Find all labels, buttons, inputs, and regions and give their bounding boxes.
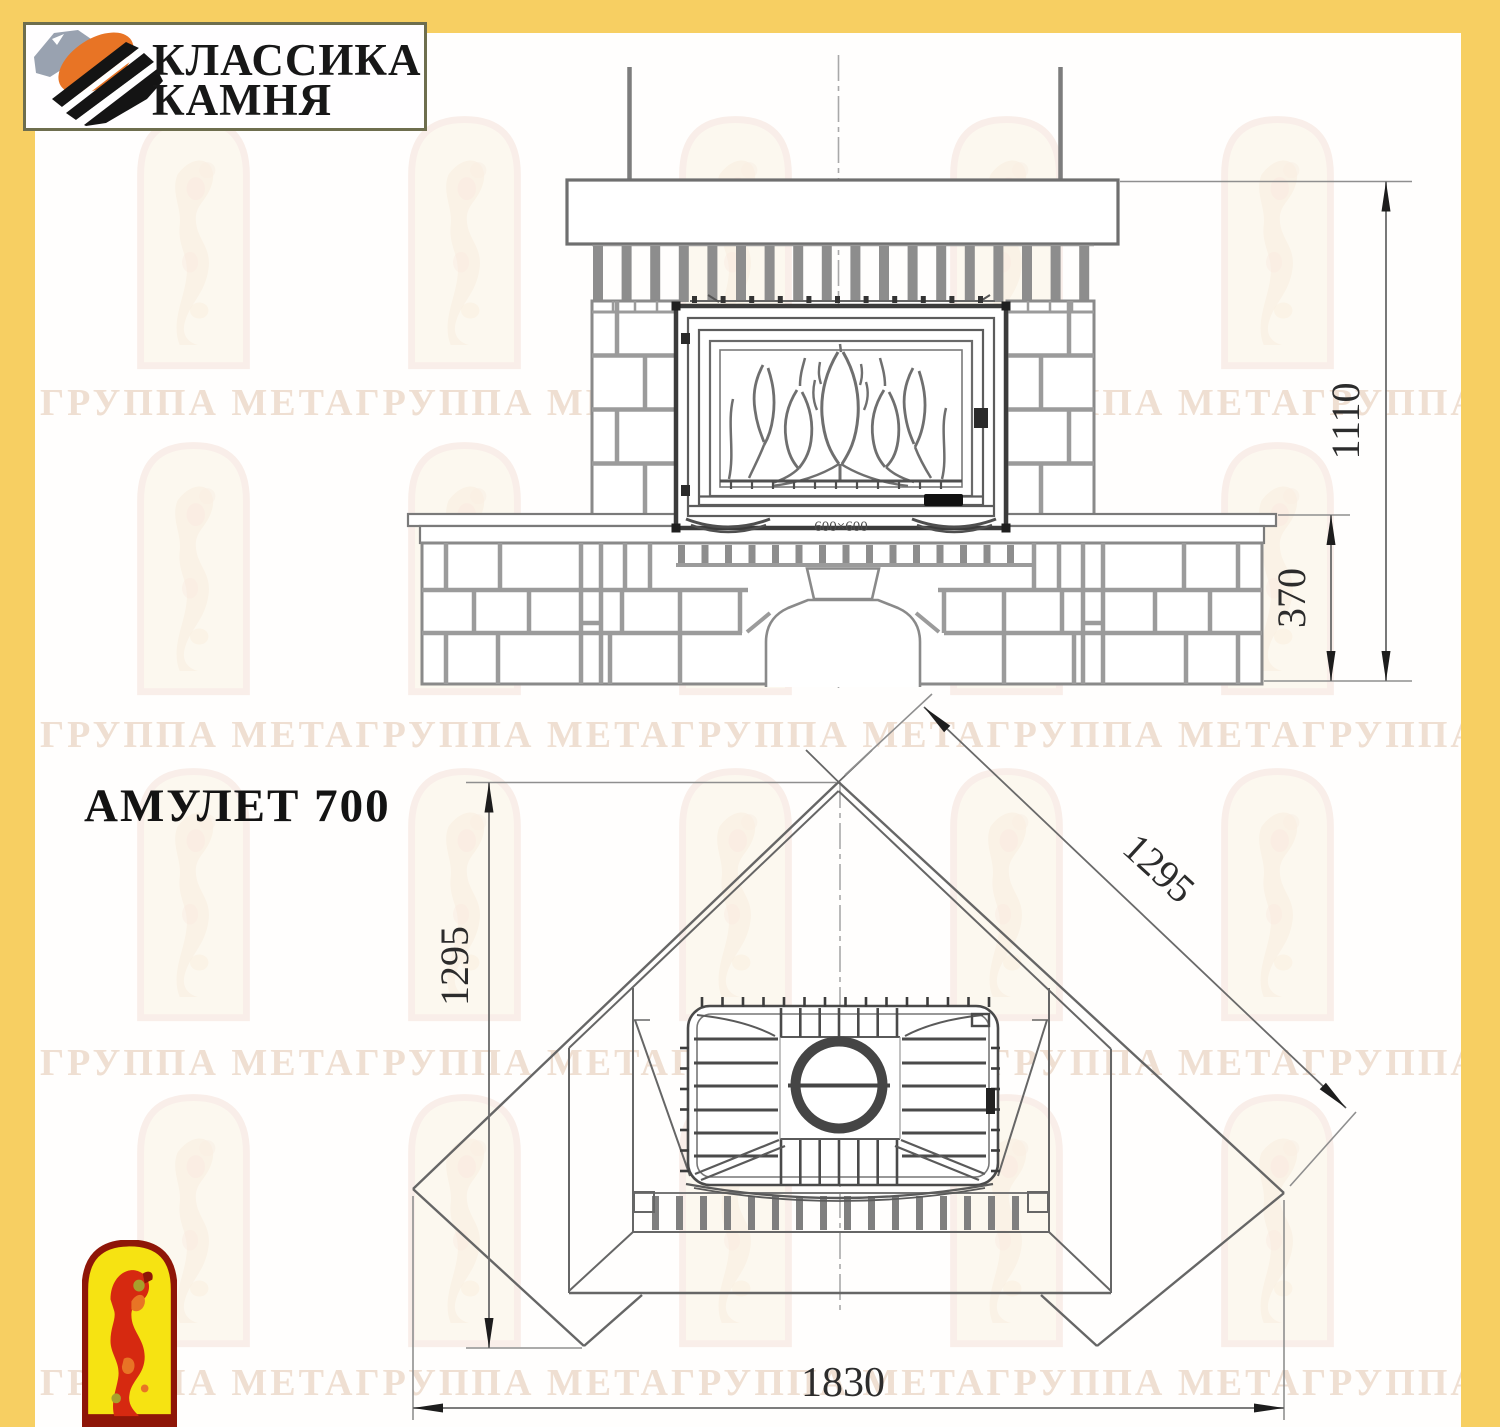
svg-text:1830: 1830 bbox=[801, 1360, 885, 1406]
svg-text:600×600: 600×600 bbox=[814, 519, 867, 535]
svg-text:1110: 1110 bbox=[1323, 382, 1368, 459]
svg-text:1295: 1295 bbox=[1114, 824, 1203, 911]
svg-text:370: 370 bbox=[1269, 568, 1314, 628]
svg-text:1295: 1295 bbox=[432, 926, 477, 1006]
